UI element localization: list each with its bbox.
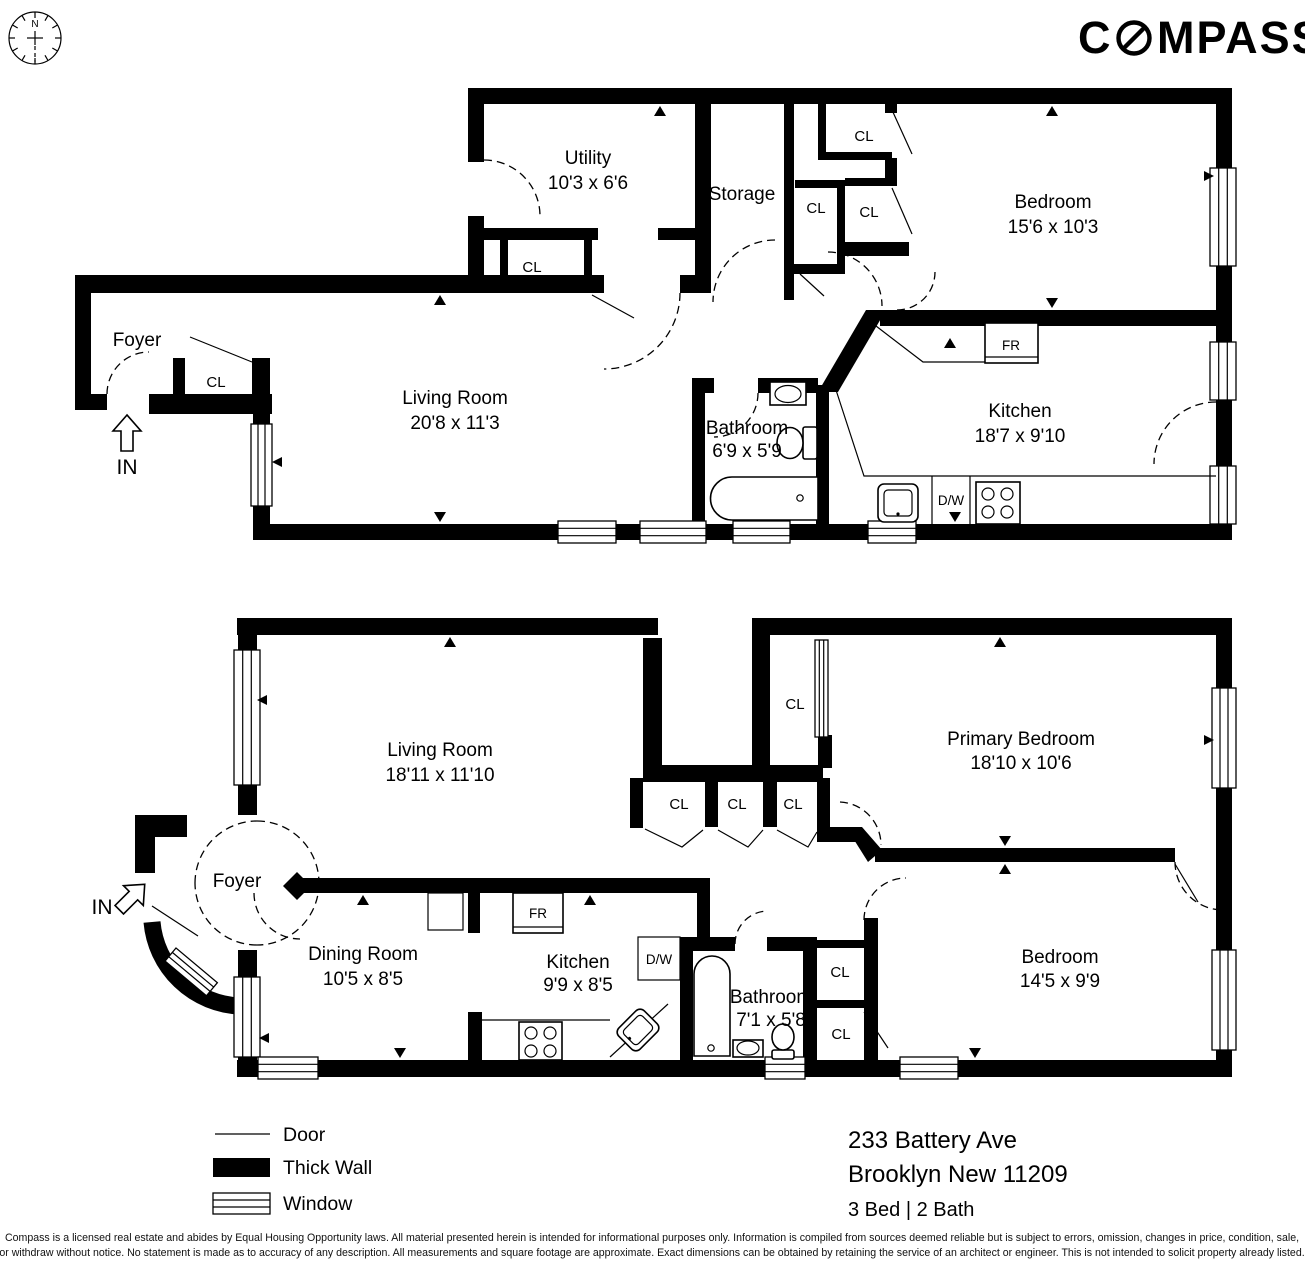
bathroom-sink-icon — [733, 1040, 763, 1057]
floor1-closet-label: CL — [806, 200, 825, 217]
floor2-bathroom-dims: 7'1 x 5'8 — [736, 1010, 806, 1031]
floorplan-canvas: N C MPASS — [0, 0, 1305, 1275]
floor2-kitchen-dims: 9'9 x 8'5 — [543, 975, 613, 996]
floor2-entry-label: IN — [92, 896, 113, 919]
legend-window-label: Window — [283, 1193, 353, 1215]
thick-wall-swatch-icon — [213, 1158, 270, 1177]
floor1-entry-arrow: IN — [113, 415, 141, 479]
stove-icon — [519, 1022, 562, 1060]
floor1-bathroom-dims: 6'9 x 5'9 — [712, 441, 782, 462]
floor1-storage-label: Storage — [709, 184, 776, 205]
compass-rose-icon: N — [9, 12, 61, 64]
floor1-living-label: Living Room — [402, 388, 508, 409]
floor1-utility-label: Utility — [565, 148, 612, 169]
legend-item-thick-wall: Thick Wall — [213, 1157, 372, 1179]
floor2-dining-dims: 10'5 x 8'5 — [323, 969, 403, 990]
address-line2: Brooklyn New 11209 — [848, 1161, 1068, 1188]
floor1-walls — [75, 88, 1232, 540]
disclaimer: Compass is a licensed real estate and ab… — [0, 1232, 1305, 1259]
floor1-dishwasher-label: D/W — [938, 493, 965, 508]
floor2-plan: IN Living Room 18'11 x 11'10 Primary Bed… — [92, 618, 1237, 1079]
legend-door-label: Door — [283, 1124, 326, 1146]
floor2-primary-label: Primary Bedroom — [947, 729, 1095, 750]
bathtub-icon — [711, 477, 819, 520]
floor1-closet-label: CL — [206, 374, 225, 391]
floor2-closet-label: CL — [669, 796, 688, 813]
floor1-kitchen-dims: 18'7 x 9'10 — [975, 426, 1066, 447]
tall-closet-slider — [815, 640, 828, 737]
floor1-bedroom-label: Bedroom — [1014, 192, 1091, 213]
floor1-bathroom-label: Bathroom — [706, 418, 788, 439]
address-block: 233 Battery Ave Brooklyn New 11209 3 Bed… — [848, 1127, 1068, 1221]
floor2-fridge-label: FR — [529, 906, 547, 921]
logo-text-mpass: MPASS — [1157, 12, 1305, 63]
bathroom-sink-icon — [770, 382, 806, 405]
floor1-entry-label: IN — [117, 456, 138, 479]
window-swatch-icon — [213, 1193, 270, 1214]
bathtub-icon — [694, 956, 730, 1056]
counter-box — [428, 893, 463, 930]
floorplan-page: N C MPASS — [0, 0, 1305, 1275]
floor2-closet-label: CL — [830, 964, 849, 981]
logo-text-c: C — [1078, 12, 1113, 63]
legend-item-door: Door — [215, 1124, 326, 1146]
floor2-dishwasher-label: D/W — [646, 952, 673, 967]
floor2-dining-label: Dining Room — [308, 944, 418, 965]
floor2-foyer-label: Foyer — [213, 871, 262, 892]
floor2-primary-dims: 18'10 x 10'6 — [970, 753, 1071, 774]
logo-o-needle-icon — [1119, 23, 1150, 54]
floor2-closet-label: CL — [785, 696, 804, 713]
floor1-closet-label: CL — [522, 259, 541, 276]
legend-item-window: Window — [213, 1193, 353, 1215]
address-line1: 233 Battery Ave — [848, 1127, 1017, 1154]
kitchen-sink-icon — [878, 484, 918, 522]
floor1-bedroom-dims: 15'6 x 10'3 — [1008, 217, 1099, 238]
compass-logo: C MPASS — [1078, 12, 1305, 63]
floor2-bedroom-label: Bedroom — [1021, 947, 1098, 968]
stove-icon — [976, 482, 1020, 524]
floor1-closet-label: CL — [859, 204, 878, 221]
floor1-utility-dims: 10'3 x 6'6 — [548, 173, 628, 194]
floor2-living-dims: 18'11 x 11'10 — [385, 765, 494, 786]
floor2-walls — [135, 618, 1232, 1077]
floor2-closet-label: CL — [783, 796, 802, 813]
floor1-closet-label: CL — [854, 128, 873, 145]
compass-north-label: N — [31, 19, 38, 30]
floor1-plan: IN Utility 10'3 x 6'6 Storage Bedroom 15… — [75, 88, 1236, 543]
legend: Door Thick Wall Window — [213, 1124, 372, 1215]
floor2-closet-label: CL — [831, 1026, 850, 1043]
floor1-living-dims: 20'8 x 11'3 — [410, 413, 499, 434]
floor1-kitchen-label: Kitchen — [988, 401, 1051, 422]
disclaimer-line1: Compass is a licensed real estate and ab… — [5, 1232, 1299, 1244]
floor2-closet-label: CL — [727, 796, 746, 813]
disclaimer-line2: or withdraw without notice. No statement… — [0, 1247, 1305, 1259]
floor2-bathroom-label: Bathroom — [730, 987, 812, 1008]
beds-baths: 3 Bed | 2 Bath — [848, 1199, 974, 1221]
floor2-entry-arrow: IN — [92, 874, 155, 919]
legend-thick-wall-label: Thick Wall — [283, 1157, 372, 1179]
floor1-foyer-label: Foyer — [113, 330, 162, 351]
floor1-fridge-label: FR — [1002, 338, 1020, 353]
floor2-bedroom-dims: 14'5 x 9'9 — [1020, 971, 1100, 992]
floor2-kitchen-label: Kitchen — [546, 952, 609, 973]
floor2-living-label: Living Room — [387, 740, 493, 761]
